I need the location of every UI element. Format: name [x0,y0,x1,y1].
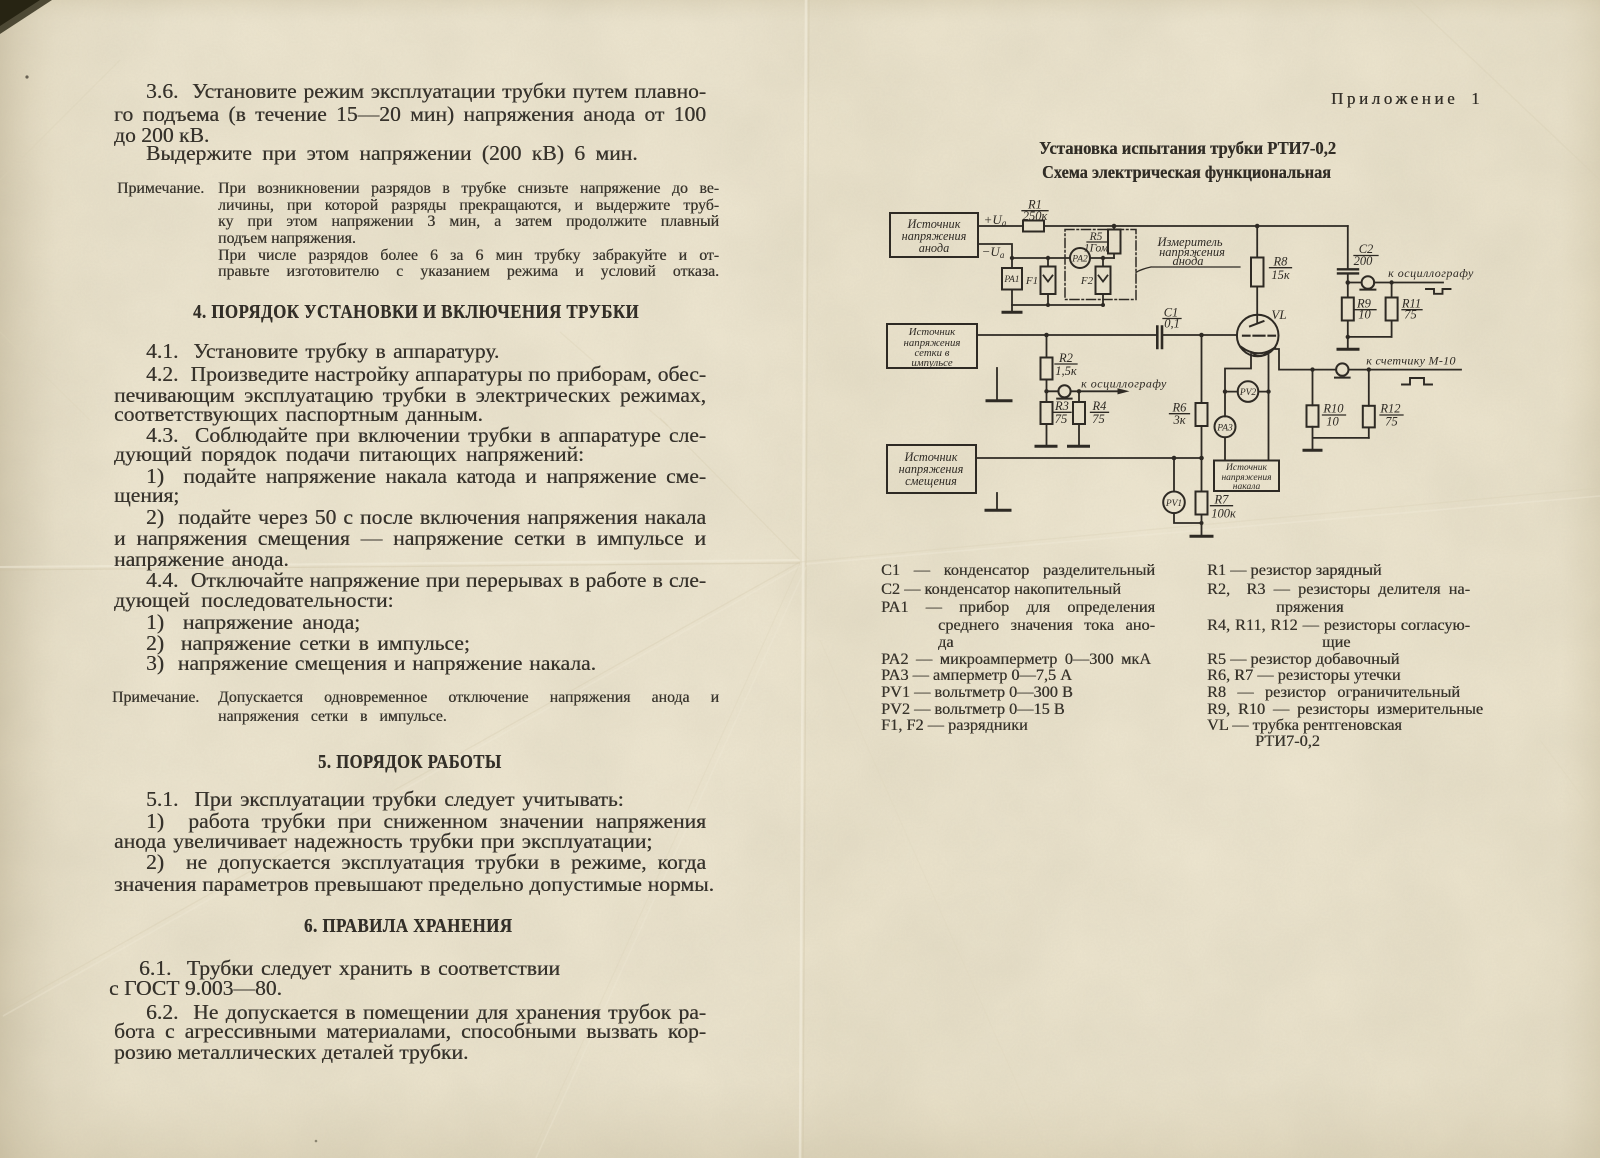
svg-text:РА2: РА2 [1071,255,1088,265]
svg-text:3к: 3к [1172,413,1185,427]
svg-text:R8: R8 [1273,255,1289,269]
svg-text:анода: анода [919,241,950,255]
svg-text:200: 200 [1354,254,1374,268]
svg-text:1,5к: 1,5к [1055,364,1077,378]
svg-text:10: 10 [1326,415,1339,429]
svg-text:R3: R3 [1054,399,1069,413]
svg-text:10: 10 [1358,308,1371,322]
svg-text:R5: R5 [1089,231,1103,243]
svg-text:к осциллографу: к осциллографу [1081,377,1167,391]
svg-text:75: 75 [1092,412,1105,426]
svg-text:R4: R4 [1092,399,1107,413]
svg-text:R2: R2 [1058,351,1073,365]
svg-text:1Гом: 1Гом [1084,243,1109,255]
svg-text:R10: R10 [1322,402,1344,416]
svg-text:+Uа: +Uа [984,212,1007,228]
svg-text:100к: 100к [1211,507,1236,521]
svg-text:PA1: PA1 [1003,275,1019,285]
svg-text:F2: F2 [1080,275,1094,287]
svg-text:250к: 250к [1023,209,1048,223]
svg-text:75: 75 [1404,308,1417,322]
svg-text:Источник: Источник [1225,463,1267,473]
svg-text:75: 75 [1055,412,1068,426]
svg-text:VL: VL [1271,307,1286,322]
svg-text:импульсе: импульсе [911,357,952,369]
svg-text:PV2: PV2 [1239,388,1257,398]
svg-text:к осциллографу: к осциллографу [1388,266,1474,280]
svg-text:R7: R7 [1214,493,1230,507]
svg-text:накала: накала [1233,482,1261,492]
svg-text:PV1: PV1 [1165,499,1182,509]
svg-text:0,1: 0,1 [1164,317,1180,331]
svg-text:F1: F1 [1025,275,1038,287]
svg-text:РА3: РА3 [1216,423,1233,433]
svg-text:75: 75 [1385,415,1398,429]
svg-text:смещения: смещения [905,474,957,488]
svg-text:к счетчику М-10: к счетчику М-10 [1366,354,1456,368]
svg-text:15к: 15к [1271,268,1290,282]
svg-text:анода: анода [1172,254,1203,268]
svg-text:R12: R12 [1379,402,1400,416]
svg-text:−Uа: −Uа [982,244,1005,260]
